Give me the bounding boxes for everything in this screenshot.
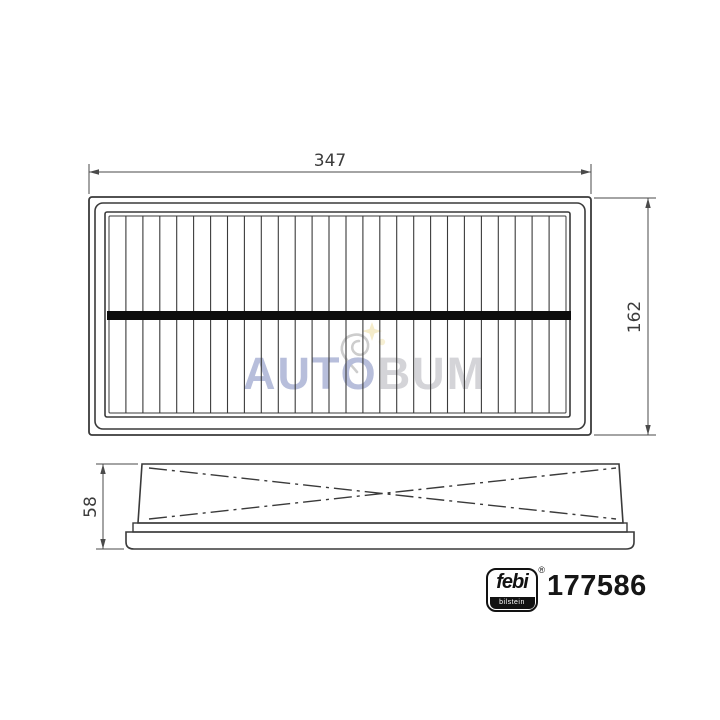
top-view	[89, 197, 591, 435]
arrow-up-icon	[645, 198, 650, 208]
febi-logo-text: febi	[488, 571, 536, 594]
technical-drawing: 347 162 58	[0, 0, 720, 720]
side-view-step	[133, 523, 627, 532]
side-view-flange	[126, 532, 634, 549]
dimension-width-label: 347	[314, 151, 346, 171]
febi-logo: febi bilstein ®	[486, 568, 538, 612]
support-bar	[107, 311, 571, 320]
arrow-up-icon	[100, 464, 105, 474]
product-drawing-page: AUTOBUM 347	[0, 0, 720, 720]
part-number: 177586	[547, 570, 647, 603]
registered-trademark-icon: ®	[538, 565, 545, 575]
febi-logo-subtitle: bilstein	[490, 597, 535, 609]
arrow-down-icon	[100, 539, 105, 549]
dimension-height-label: 162	[625, 301, 645, 333]
arrow-left-icon	[89, 169, 99, 174]
brand-block: febi bilstein ® 177586	[486, 568, 647, 612]
arrow-down-icon	[645, 425, 650, 435]
side-view	[126, 464, 634, 549]
arrow-right-icon	[581, 169, 591, 174]
dimension-depth	[96, 464, 138, 549]
dimension-depth-label: 58	[81, 496, 101, 518]
